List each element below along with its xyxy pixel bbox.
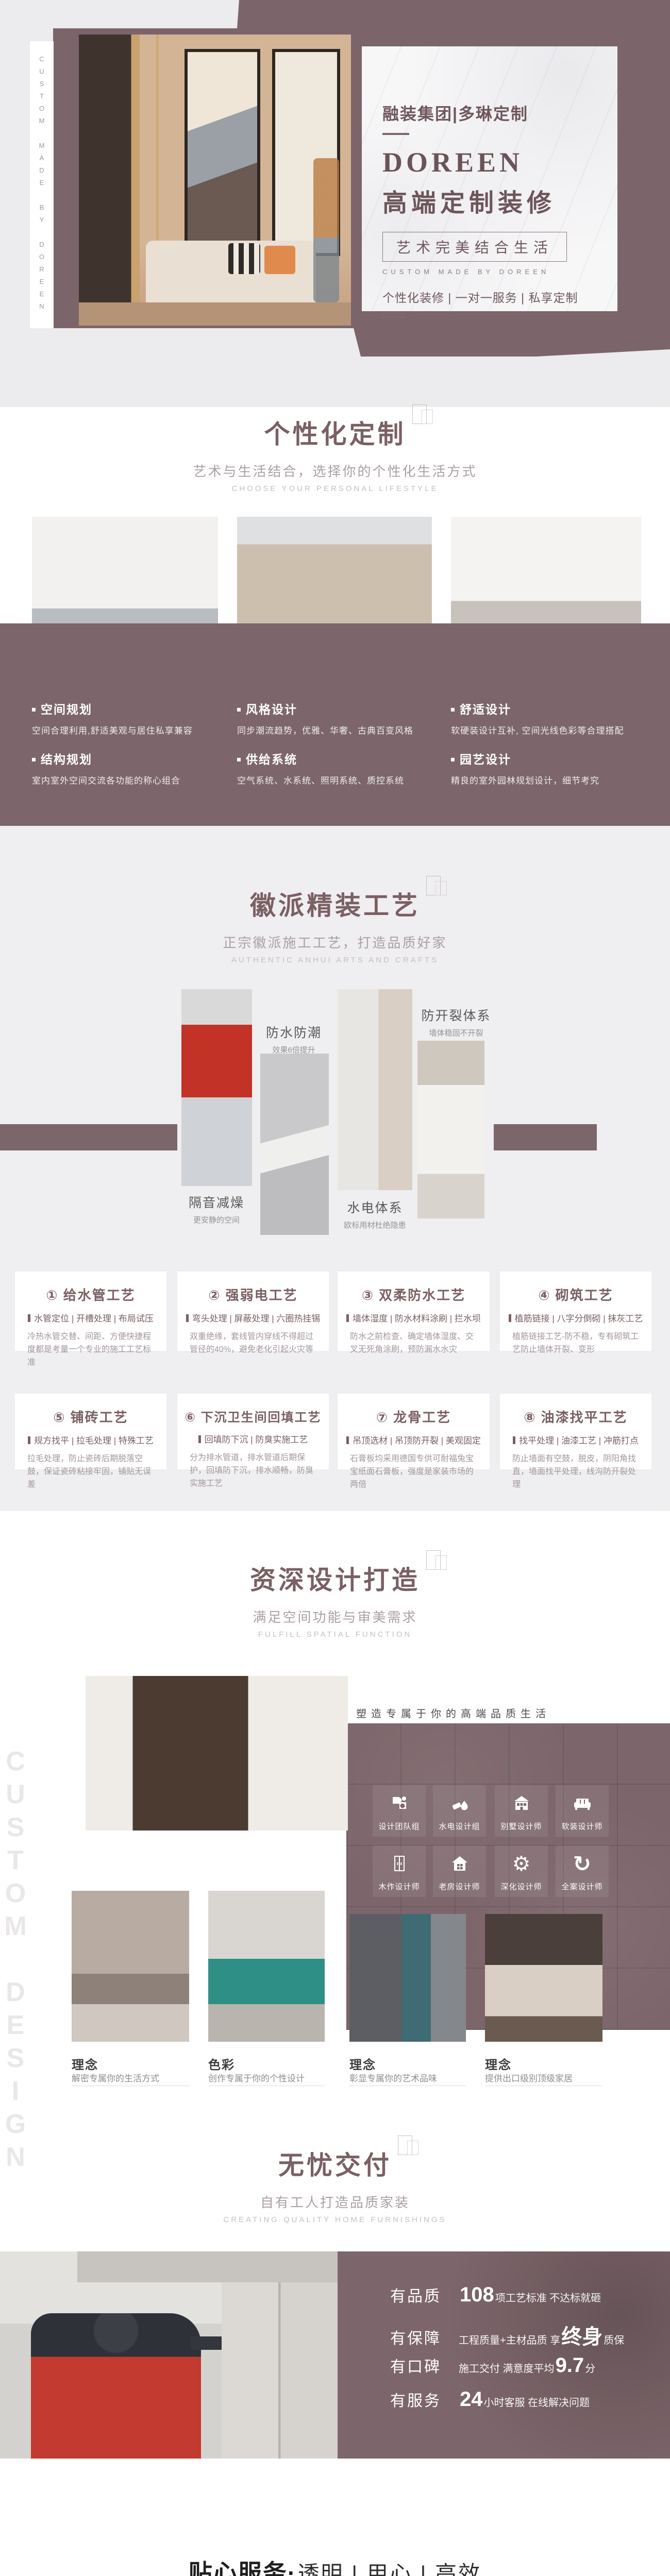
- idea-card-2: 色彩 创作专属于你的个性设计: [208, 1891, 325, 2094]
- design-section-subtitle: 满足空间功能与审美需求: [0, 1607, 670, 1626]
- craft-card-5: ⑤ 铺砖工艺 规方找平 | 拉毛处理 | 特殊工艺 拉毛处理，防止瓷砖后期脱落空…: [15, 1394, 166, 1469]
- cabinet-icon: [373, 1853, 426, 1875]
- divider: [72, 2086, 189, 2086]
- worker-photo: [0, 2251, 338, 2459]
- craft-section-header: 徽派精装工艺 正宗徽派施工工艺，打造品质好家 AUTHENTIC ANHUI A…: [0, 885, 670, 964]
- team-tile-softfurnish-designer: 软装设计师: [556, 1785, 609, 1837]
- tag-bar-icon: [346, 1436, 349, 1444]
- craft-card-7: ⑦ 龙骨工艺 吊顶选材 | 吊顶防开裂 | 美观固定 石膏板均采用德国专供可耐福…: [338, 1394, 490, 1469]
- service-section-title: 贴心服务· 透明 | 用心 | 高效: [0, 2554, 670, 2576]
- craft-card-2: ② 强弱电工艺 弯头处理 | 屏蔽处理 | 六圈热挂锡 双重绝缘，套线管内穿线不…: [177, 1272, 329, 1351]
- divider: [485, 2086, 602, 2086]
- team-tile-hydropower-group: 水电设计组: [433, 1785, 486, 1837]
- custom-section-title: 个性化定制: [264, 414, 406, 451]
- hero-marble-panel: 融装集团|多琳定制 DOREEN 高端定制装修 艺术完美结合生活 CUSTOM …: [362, 46, 617, 311]
- idea-card-1: 理念 解密专属你的生活方式: [72, 1891, 189, 2094]
- cabinet-top: [77, 2251, 338, 2282]
- collage-label-anticrack: 防开裂体系 墙体稳固不开裂: [399, 1006, 513, 1038]
- divider: [208, 2086, 325, 2086]
- feature-garden-design: 园艺设计 精良的室外园林规划设计，细节考究: [451, 750, 662, 786]
- gear-icon: ⚙: [495, 1853, 548, 1875]
- idea-photo-curved-sofa: [485, 1914, 602, 2042]
- design-section-title: 资深设计打造: [250, 1560, 420, 1597]
- craft-side-bar-right: [494, 1124, 597, 1150]
- service-title-strong: 贴心服务: [189, 2560, 288, 2576]
- craft-section-english: AUTHENTIC ANHUI ARTS AND CRAFTS: [0, 956, 670, 964]
- design-panel-heading: 塑造专属于你的高端品质生活: [356, 1705, 550, 1720]
- collage-label-waterproof: 防水防潮 效果6倍提升: [240, 1023, 348, 1055]
- feature-structure-planning: 结构规划 室内室外空间交流各功能的称心组合: [32, 750, 223, 786]
- tag-bar-icon: [186, 1314, 189, 1322]
- craft-photo-pipes: [181, 989, 252, 1186]
- idea-card-4: 理念 提供出口级别顶级家居: [485, 1891, 602, 2094]
- feature-style-design: 风格设计 同步潮流趋势，优雅、华奢、古典百变风格: [237, 700, 438, 736]
- design-side-text: CUSTOM DESIGN: [2, 1747, 29, 2175]
- hero-logo: DOREEN: [382, 146, 617, 178]
- delivery-section-subtitle: 自有工人打造品质家装: [0, 2192, 670, 2211]
- square-bullet-icon: [32, 758, 36, 761]
- hero-photo: [79, 35, 351, 326]
- hero-services-line: 个性化装修 | 一对一服务 | 私享定制: [382, 288, 617, 306]
- feature-comfort-design: 舒适设计 软硬装设计互补, 空间光线色彩等合理搭配: [451, 700, 662, 736]
- design-showroom-photo: [86, 1676, 348, 1831]
- craft-card-3: ③ 双柔防水工艺 墙体湿度 | 防水材料涂刷 | 拦水坝 防水之前检查、确定墙体…: [338, 1272, 490, 1351]
- sofa-icon: [556, 1792, 609, 1815]
- service-title-dot: ·: [288, 2560, 295, 2576]
- hero-side-strip: CUSTOM MADE BY DOREEN: [30, 41, 54, 328]
- craft-card-6: ⑥ 下沉卫生间回填工艺 回填防下沉 | 防臭实施工艺 分为排水管道，排水管道后期…: [177, 1394, 329, 1469]
- hero-title: 高端定制装修: [382, 182, 617, 218]
- square-bullet-icon: [451, 758, 455, 761]
- custom-section-header: 个性化定制 艺术与生活结合，选择你的个性化生活方式 CHOOSE YOUR PE…: [0, 414, 670, 493]
- idea-photo-teal-sofa: [208, 1891, 325, 2042]
- craft-card-8: ⑧ 油漆找平工艺 找平处理 | 油漆工艺 | 冲筋打点 防止墙面有空鼓，脱皮，阴…: [500, 1394, 651, 1469]
- idea-photo-bedroom: [72, 1891, 189, 2042]
- double-line-bottom: [382, 317, 406, 318]
- team-tile-woodwork-designer: 木作设计师: [373, 1845, 426, 1897]
- water-drop-icon: [433, 1792, 486, 1815]
- hero-boxed-slogan: 艺术完美结合生活: [382, 232, 567, 262]
- mirror-panel: [79, 35, 140, 326]
- stat-guarantee: 有保障工程质量+主材品质 享终身质保: [390, 2320, 624, 2350]
- feature-space-planning: 空间规划 空间合理利用,舒适美观与居住私享兼容: [32, 700, 223, 736]
- hero-vertical-text: CUSTOM MADE BY DOREEN: [38, 55, 46, 315]
- square-bullet-icon: [451, 708, 455, 711]
- collage-label-hydropower: 水电体系 欧标用材杜绝隐患: [317, 1198, 433, 1230]
- craft-section-title: 徽派精装工艺: [250, 885, 420, 922]
- craft-section-subtitle: 正宗徽派施工工艺，打造品质好家: [0, 933, 670, 952]
- team-tile-design-group: 设计团队组: [373, 1785, 426, 1837]
- idea-photo-gray-chair: [349, 1914, 466, 2042]
- delivery-section-title: 无忧交付: [278, 2145, 392, 2182]
- puzzle-icon: [373, 1792, 426, 1815]
- craft-card-4: ④ 砌筑工艺 植筋链接 | 八字分倒砌 | 抹灰工艺 植筋链接工艺-防不稳，专有…: [500, 1272, 651, 1351]
- divider: [349, 2086, 466, 2086]
- brand-dash: [382, 133, 409, 135]
- design-section-english: FULFILL SPATIAL FUNCTION: [0, 1630, 670, 1639]
- collage-label-soundproof: 隔音减燥 更安静的空间: [175, 1193, 258, 1225]
- custom-section-english: CHOOSE YOUR PERSONAL LIFESTYLE: [0, 484, 670, 493]
- hero-brand-line: 融装集团|多琳定制: [382, 101, 617, 125]
- floor: [79, 302, 351, 326]
- idea-card-3: 理念 彰显专属你的艺术品味: [349, 1891, 466, 2094]
- landing-page: CUSTOM MADE BY DOREEN 融装集团|多琳定制 DOREEN 高…: [0, 0, 670, 2576]
- cabinet-doors: [222, 2282, 338, 2459]
- house-icon: [433, 1853, 486, 1875]
- stat-reputation: 有口碑施工交付 满意度平均9.7分: [390, 2354, 595, 2377]
- craft-card-1: ① 给水管工艺 水管定位 | 开槽处理 | 布局试压 冷热水管交替、间距、方便快…: [15, 1272, 166, 1351]
- villa-icon: [495, 1792, 548, 1815]
- hero-english-slogan: CUSTOM MADE BY DOREEN: [382, 268, 617, 276]
- tag-bar-icon: [513, 1436, 515, 1444]
- stat-quality: 有品质108项工艺标准 不达标就砸: [390, 2283, 601, 2307]
- delivery-stats-panel: 有品质108项工艺标准 不达标就砸 有保障工程质量+主材品质 享终身质保 有口碑…: [338, 2251, 670, 2459]
- tag-bar-icon: [346, 1314, 349, 1322]
- hero-section: CUSTOM MADE BY DOREEN 融装集团|多琳定制 DOREEN 高…: [0, 0, 670, 407]
- service-title-rest: 透明 | 用心 | 高效: [298, 2562, 482, 2576]
- tag-bar-icon: [198, 1435, 201, 1443]
- delivery-section-english: CREATING QUALITY HOME FURNISHINGS: [0, 2215, 670, 2224]
- tag-bar-icon: [28, 1314, 30, 1322]
- craft-side-bar-left: [0, 1124, 177, 1150]
- double-line-top: [382, 313, 406, 314]
- square-bullet-icon: [237, 758, 241, 761]
- tag-bar-icon: [28, 1436, 30, 1444]
- refresh-icon: ↻: [556, 1853, 609, 1875]
- sofa-pillow-plaid: [228, 243, 260, 274]
- team-tile-villa-designer: 别墅设计师: [495, 1785, 548, 1837]
- team-tile-deepening-designer: ⚙ 深化设计师: [495, 1845, 548, 1897]
- worker-body: [31, 2313, 201, 2459]
- design-section-header: 资深设计打造 满足空间功能与审美需求 FULFILL SPATIAL FUNCT…: [0, 1560, 670, 1639]
- custom-section-subtitle: 艺术与生活结合，选择你的个性化生活方式: [0, 461, 670, 480]
- stat-service: 有服务24小时客服 在线解决问题: [390, 2388, 590, 2411]
- wall-art-statue: [185, 49, 260, 256]
- delivery-section-header: 无忧交付 自有工人打造品质家装 CREATING QUALITY HOME FU…: [0, 2145, 670, 2224]
- feature-supply-system: 供给系统 空气系统、水系统、照明系统、质控系统: [237, 750, 438, 786]
- craft-photo-window-room: [417, 1041, 484, 1218]
- team-tile-wholecase-designer: ↻ 全案设计师: [556, 1845, 609, 1897]
- square-bullet-icon: [32, 708, 36, 711]
- branch-decor: [313, 158, 339, 302]
- tag-bar-icon: [509, 1314, 511, 1322]
- sofa-pillow-orange: [264, 246, 295, 274]
- square-bullet-icon: [237, 708, 241, 711]
- team-tile-oldhouse-designer: 老房设计师: [433, 1845, 486, 1897]
